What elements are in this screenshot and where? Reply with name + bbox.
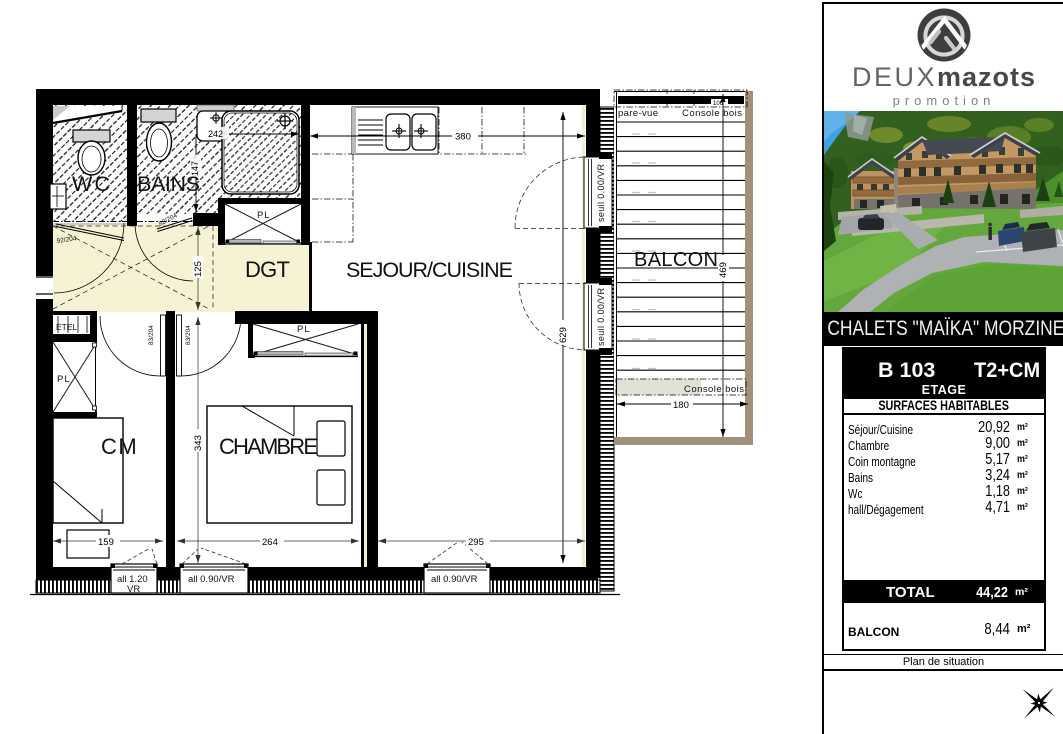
svg-text:295: 295 <box>468 537 484 548</box>
svg-text:DGT: DGT <box>245 257 290 282</box>
svg-text:242: 242 <box>208 129 223 139</box>
svg-text:380: 380 <box>455 132 471 143</box>
svg-text:PL: PL <box>297 324 311 335</box>
svg-text:BALCON: BALCON <box>634 249 718 271</box>
svg-text:WC: WC <box>72 172 110 196</box>
svg-text:180: 180 <box>673 400 689 411</box>
svg-text:469: 469 <box>718 262 729 278</box>
svg-text:83/204: 83/204 <box>148 325 155 345</box>
svg-text:Console bois: Console bois <box>682 108 742 119</box>
svg-text:264: 264 <box>262 537 278 548</box>
svg-text:seuil 0.00/VR: seuil 0.00/VR <box>596 164 606 223</box>
svg-text:159: 159 <box>98 537 114 548</box>
svg-text:125: 125 <box>193 261 204 277</box>
svg-text:all 0.90/VR: all 0.90/VR <box>431 574 478 585</box>
svg-text:BAINS: BAINS <box>137 172 200 196</box>
svg-text:seuil 0.00/VR: seuil 0.00/VR <box>596 288 606 347</box>
svg-text:83/204: 83/204 <box>185 325 192 345</box>
svg-text:ETEL: ETEL <box>56 322 78 332</box>
svg-text:CM: CM <box>101 434 138 459</box>
svg-text:CHAMBRE: CHAMBRE <box>219 434 318 459</box>
svg-text:PL: PL <box>257 210 271 221</box>
svg-text:629: 629 <box>558 327 569 343</box>
svg-text:VR: VR <box>127 584 140 595</box>
svg-text:all 0.90/VR: all 0.90/VR <box>188 574 235 585</box>
svg-text:Console bois: Console bois <box>684 384 744 395</box>
svg-text:343: 343 <box>193 435 204 451</box>
svg-text:SEJOUR/CUISINE: SEJOUR/CUISINE <box>346 258 513 282</box>
svg-text:pare-vue: pare-vue <box>618 108 658 119</box>
svg-text:PL: PL <box>57 374 71 385</box>
